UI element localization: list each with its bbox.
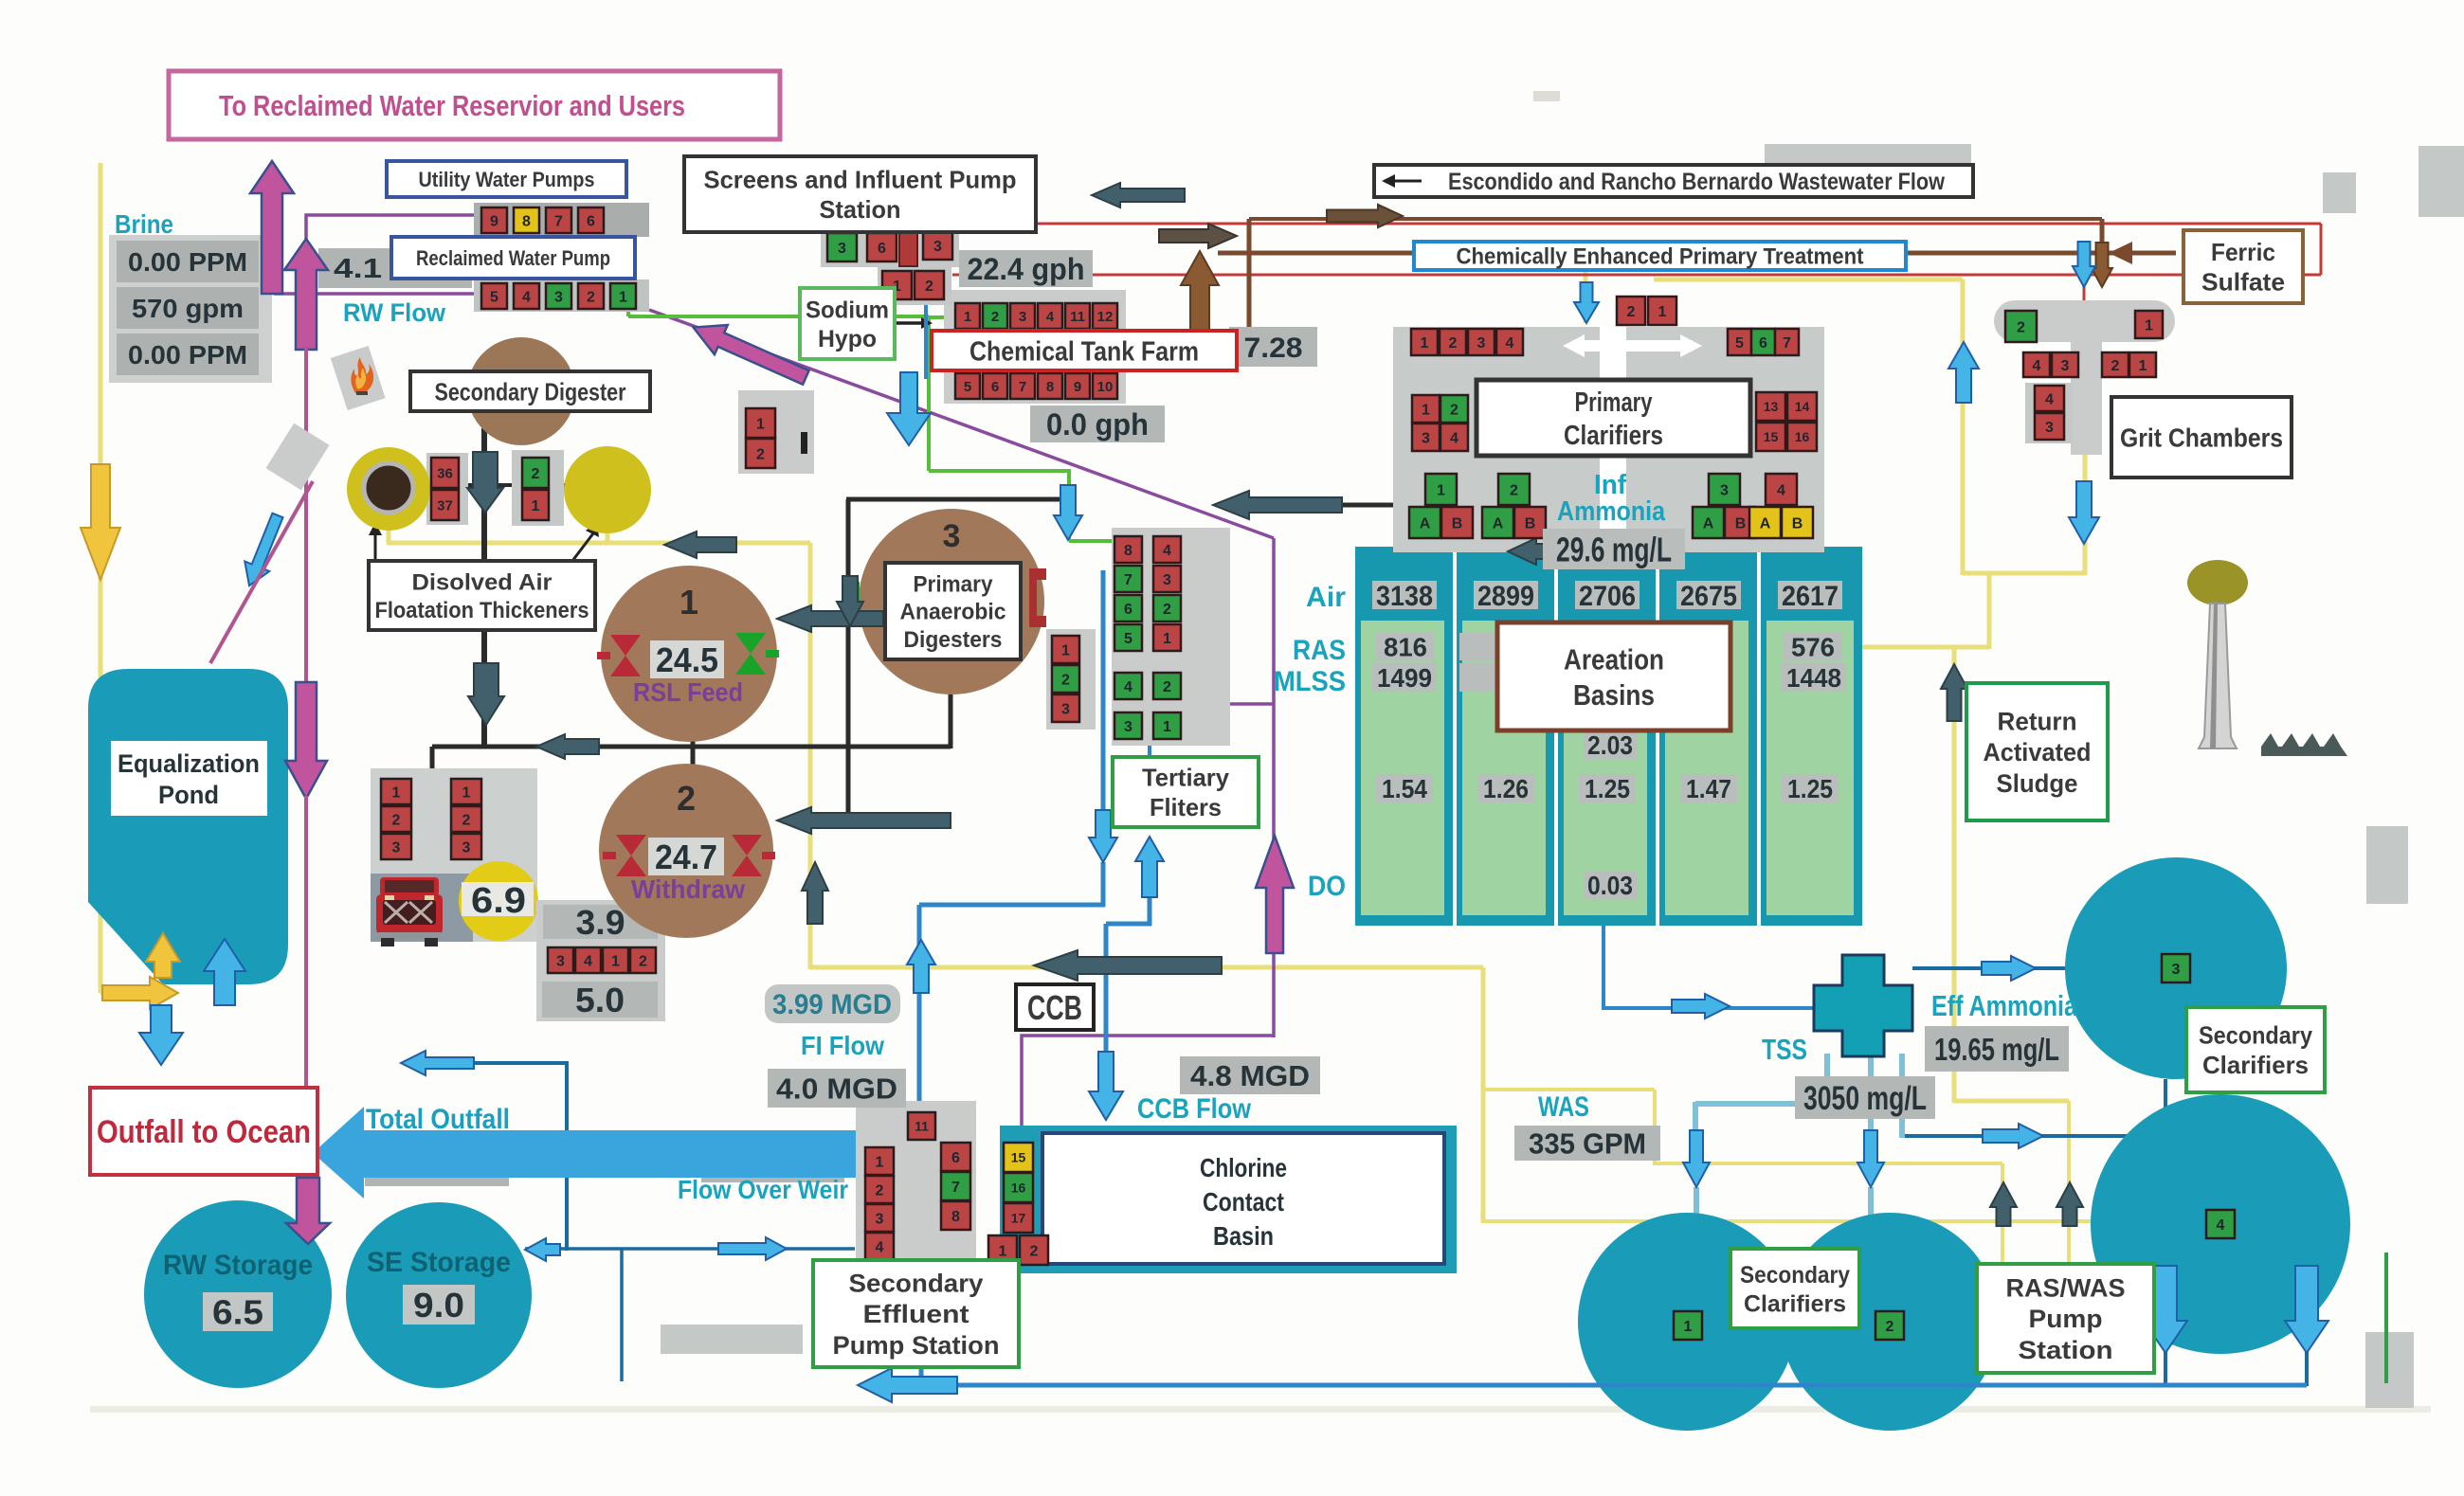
- svg-text:7.28: 7.28: [1244, 333, 1303, 364]
- svg-text:3: 3: [1422, 430, 1430, 446]
- svg-text:5: 5: [490, 289, 498, 305]
- svg-text:16: 16: [1795, 429, 1810, 444]
- svg-text:B: B: [1735, 515, 1747, 532]
- svg-text:4: 4: [1777, 482, 1785, 498]
- svg-text:1499: 1499: [1377, 663, 1432, 693]
- svg-text:2: 2: [639, 953, 647, 969]
- svg-text:10: 10: [1097, 379, 1114, 395]
- svg-text:Floatation Thickeners: Floatation Thickeners: [375, 598, 589, 623]
- svg-text:17: 17: [1011, 1211, 1026, 1226]
- svg-text:1.54: 1.54: [1382, 774, 1427, 803]
- svg-text:2: 2: [925, 279, 933, 295]
- svg-text:1: 1: [1658, 304, 1667, 320]
- svg-text:1: 1: [619, 289, 627, 305]
- svg-text:2617: 2617: [1782, 581, 1839, 612]
- svg-text:Ammonia: Ammonia: [1557, 496, 1666, 527]
- svg-text:2: 2: [1449, 335, 1458, 351]
- svg-text:1: 1: [611, 953, 620, 969]
- svg-text:2: 2: [1163, 679, 1171, 695]
- svg-text:CCB: CCB: [1027, 988, 1082, 1027]
- svg-text:Clarifiers: Clarifiers: [1564, 421, 1663, 451]
- svg-text:Activated: Activated: [1984, 738, 2092, 766]
- svg-text:1: 1: [756, 416, 765, 432]
- svg-text:CCB Flow: CCB Flow: [1137, 1093, 1252, 1125]
- svg-text:4: 4: [584, 953, 592, 969]
- svg-text:Sludge: Sludge: [1997, 769, 2078, 798]
- svg-text:0.03: 0.03: [1587, 871, 1633, 900]
- svg-text:2: 2: [677, 779, 696, 818]
- svg-text:MLSS: MLSS: [1274, 666, 1346, 697]
- svg-text:4: 4: [2045, 391, 2054, 407]
- svg-text:6: 6: [1124, 602, 1132, 618]
- svg-text:3138: 3138: [1376, 581, 1433, 612]
- svg-text:B: B: [1525, 515, 1536, 532]
- svg-text:4.0 MGD: 4.0 MGD: [776, 1072, 897, 1106]
- svg-text:5: 5: [964, 379, 971, 395]
- svg-text:4: 4: [522, 289, 531, 305]
- svg-text:1: 1: [462, 784, 471, 801]
- svg-text:4: 4: [876, 1239, 884, 1255]
- svg-text:6: 6: [587, 213, 595, 229]
- svg-text:A: A: [1493, 515, 1504, 532]
- svg-text:5: 5: [1124, 631, 1132, 647]
- svg-text:2: 2: [1510, 482, 1518, 498]
- svg-text:7: 7: [1124, 572, 1132, 588]
- svg-text:Chemically Enhanced Primary Tr: Chemically Enhanced Primary Treatment: [1457, 244, 1864, 270]
- svg-text:Ferric: Ferric: [2211, 238, 2275, 266]
- svg-text:Basin: Basin: [1213, 1221, 1274, 1251]
- svg-text:SE Storage: SE Storage: [367, 1247, 511, 1278]
- svg-text:1: 1: [1061, 642, 1070, 658]
- svg-text:7: 7: [554, 213, 563, 229]
- svg-text:Station: Station: [2019, 1336, 2113, 1364]
- svg-text:B: B: [1452, 515, 1463, 532]
- svg-text:5: 5: [1735, 335, 1744, 351]
- svg-text:2: 2: [1030, 1243, 1039, 1259]
- svg-text:0.0 gph: 0.0 gph: [1046, 407, 1149, 442]
- svg-text:2: 2: [991, 309, 999, 325]
- svg-text:2: 2: [1627, 304, 1636, 320]
- svg-text:6.5: 6.5: [212, 1292, 263, 1331]
- svg-text:2: 2: [2111, 358, 2120, 374]
- svg-text:22.4 gph: 22.4 gph: [968, 252, 1085, 286]
- svg-text:9: 9: [490, 213, 498, 229]
- svg-text:3: 3: [392, 839, 401, 856]
- svg-text:2: 2: [532, 466, 540, 482]
- svg-text:3: 3: [1720, 482, 1729, 498]
- svg-text:36: 36: [437, 465, 453, 481]
- svg-text:576: 576: [1791, 633, 1835, 662]
- svg-text:9: 9: [1074, 379, 1081, 395]
- svg-text:Escondido and Rancho Bernardo: Escondido and Rancho Bernardo Wastewater…: [1448, 169, 1945, 195]
- svg-text:3: 3: [554, 289, 563, 305]
- svg-text:3: 3: [1163, 572, 1171, 588]
- svg-text:1: 1: [1163, 719, 1171, 735]
- svg-text:8: 8: [1046, 379, 1054, 395]
- svg-text:1: 1: [1422, 402, 1430, 418]
- svg-text:4: 4: [1124, 679, 1132, 695]
- svg-text:13: 13: [1764, 399, 1779, 414]
- svg-text:Digesters: Digesters: [904, 627, 1003, 653]
- svg-text:5.0: 5.0: [575, 981, 625, 1019]
- svg-text:3: 3: [556, 953, 565, 969]
- svg-text:816: 816: [1384, 633, 1427, 662]
- svg-text:WAS: WAS: [1538, 1091, 1589, 1123]
- svg-text:Utility Water Pumps: Utility Water Pumps: [419, 168, 595, 191]
- svg-text:Outfall to Ocean: Outfall to Ocean: [97, 1114, 311, 1150]
- svg-text:3: 3: [1477, 335, 1486, 351]
- svg-text:3: 3: [1019, 309, 1026, 325]
- svg-text:1: 1: [532, 498, 540, 514]
- svg-text:2: 2: [1886, 1319, 1894, 1335]
- svg-text:Tertiary: Tertiary: [1142, 764, 1230, 792]
- svg-text:19.65 mg/L: 19.65 mg/L: [1934, 1032, 2059, 1067]
- svg-text:FI Flow: FI Flow: [801, 1031, 884, 1060]
- svg-text:Eff Ammonia: Eff Ammonia: [1931, 989, 2078, 1022]
- svg-text:RSL Feed: RSL Feed: [633, 677, 743, 707]
- svg-text:2: 2: [756, 446, 765, 462]
- svg-text:Reclaimed Water Pump: Reclaimed Water Pump: [416, 246, 610, 270]
- svg-text:Station: Station: [820, 195, 901, 224]
- svg-text:3: 3: [462, 839, 471, 856]
- svg-text:B: B: [1792, 515, 1803, 532]
- svg-text:3: 3: [1061, 701, 1070, 717]
- svg-text:7: 7: [1783, 335, 1791, 351]
- svg-text:1: 1: [1684, 1319, 1693, 1335]
- svg-text:2: 2: [876, 1182, 884, 1199]
- svg-text:4: 4: [1163, 543, 1171, 559]
- svg-text:3: 3: [876, 1211, 884, 1227]
- svg-text:24.7: 24.7: [655, 838, 717, 876]
- svg-text:A: A: [1420, 515, 1431, 532]
- svg-text:Pump: Pump: [2029, 1305, 2103, 1333]
- svg-text:Total Outfall: Total Outfall: [366, 1104, 510, 1135]
- svg-text:4: 4: [1450, 430, 1458, 446]
- svg-text:4.8 MGD: 4.8 MGD: [1190, 1059, 1310, 1092]
- svg-text:24.5: 24.5: [656, 640, 718, 679]
- svg-text:4: 4: [2033, 358, 2041, 374]
- svg-text:2: 2: [462, 812, 471, 828]
- svg-text:Flow Over Weir: Flow Over Weir: [678, 1175, 848, 1204]
- svg-text:1: 1: [1163, 631, 1171, 647]
- svg-text:1.26: 1.26: [1483, 774, 1529, 803]
- svg-text:16: 16: [1011, 1181, 1026, 1196]
- svg-text:9.0: 9.0: [413, 1286, 464, 1325]
- svg-text:2: 2: [587, 289, 595, 305]
- svg-text:Clarifiers: Clarifiers: [1744, 1290, 1846, 1317]
- svg-text:3.99 MGD: 3.99 MGD: [772, 989, 892, 1020]
- svg-text:2675: 2675: [1680, 581, 1737, 612]
- svg-text:335 GPM: 335 GPM: [1529, 1127, 1646, 1161]
- svg-text:570 gpm: 570 gpm: [132, 294, 244, 323]
- svg-text:0.00 PPM: 0.00 PPM: [128, 247, 247, 277]
- svg-text:3: 3: [1124, 719, 1132, 735]
- svg-text:To Reclaimed Water Reservior a: To Reclaimed Water Reservior and Users: [219, 89, 685, 122]
- svg-text:3050 mg/L: 3050 mg/L: [1803, 1080, 1927, 1117]
- svg-text:A: A: [1760, 515, 1771, 532]
- svg-text:Secondary: Secondary: [2199, 1021, 2312, 1050]
- svg-text:Secondary: Secondary: [849, 1269, 984, 1297]
- svg-text:Basins: Basins: [1573, 678, 1655, 712]
- svg-text:8: 8: [951, 1209, 960, 1225]
- svg-text:3: 3: [933, 239, 942, 255]
- svg-text:Sodium: Sodium: [806, 297, 889, 323]
- svg-text:11: 11: [1070, 309, 1085, 325]
- svg-text:Grit Chambers: Grit Chambers: [2120, 424, 2283, 453]
- svg-text:2: 2: [1163, 602, 1171, 618]
- svg-text:Hypo: Hypo: [818, 326, 877, 352]
- svg-text:1: 1: [876, 1154, 884, 1170]
- svg-text:Sulfate: Sulfate: [2201, 268, 2285, 297]
- svg-text:1: 1: [2145, 317, 2153, 333]
- svg-text:6: 6: [991, 379, 999, 395]
- svg-text:Pond: Pond: [158, 781, 219, 809]
- svg-text:1: 1: [1421, 335, 1429, 351]
- svg-text:Secondary: Secondary: [1740, 1262, 1850, 1289]
- svg-text:1: 1: [2139, 358, 2147, 374]
- svg-text:Return: Return: [1998, 707, 2077, 735]
- svg-text:RAS: RAS: [1293, 635, 1346, 666]
- svg-text:Brine: Brine: [115, 209, 173, 239]
- svg-text:2: 2: [1450, 402, 1458, 418]
- svg-text:RW Storage: RW Storage: [163, 1250, 313, 1281]
- svg-text:Contact: Contact: [1203, 1187, 1284, 1217]
- svg-text:6: 6: [951, 1150, 960, 1166]
- svg-text:Equalization: Equalization: [118, 749, 260, 778]
- svg-text:3: 3: [838, 241, 846, 257]
- svg-text:Chemical Tank Farm: Chemical Tank Farm: [969, 336, 1199, 367]
- svg-text:1: 1: [999, 1243, 1007, 1259]
- svg-text:1: 1: [679, 583, 698, 622]
- svg-text:TSS: TSS: [1762, 1033, 1807, 1066]
- svg-text:1.47: 1.47: [1686, 774, 1731, 803]
- svg-text:DO: DO: [1308, 871, 1346, 902]
- svg-text:15: 15: [1011, 1150, 1026, 1165]
- svg-text:Pump Station: Pump Station: [833, 1331, 1000, 1360]
- svg-text:2: 2: [2017, 319, 2025, 335]
- svg-text:1.25: 1.25: [1787, 774, 1833, 803]
- svg-text:12: 12: [1097, 309, 1114, 325]
- svg-text:Fliters: Fliters: [1150, 793, 1222, 821]
- svg-text:Areation: Areation: [1564, 642, 1664, 676]
- svg-text:Effluent: Effluent: [863, 1300, 969, 1328]
- svg-text:3.9: 3.9: [576, 903, 625, 942]
- svg-text:1: 1: [1437, 482, 1445, 498]
- svg-text:2706: 2706: [1579, 581, 1636, 612]
- svg-text:Disolved Air: Disolved Air: [412, 570, 553, 596]
- svg-text:4: 4: [2217, 1217, 2225, 1234]
- svg-text:1.25: 1.25: [1585, 774, 1630, 803]
- svg-text:Screens and Influent Pump: Screens and Influent Pump: [704, 166, 1017, 194]
- svg-text:7: 7: [1019, 379, 1026, 395]
- svg-text:11: 11: [915, 1119, 929, 1134]
- svg-text:0.00 PPM: 0.00 PPM: [128, 340, 247, 369]
- svg-text:15: 15: [1764, 429, 1779, 444]
- svg-text:2: 2: [1061, 672, 1070, 688]
- svg-text:Chlorine: Chlorine: [1200, 1153, 1287, 1182]
- svg-text:3: 3: [2045, 420, 2054, 436]
- svg-text:6: 6: [1759, 335, 1767, 351]
- svg-text:8: 8: [522, 213, 531, 229]
- svg-text:2899: 2899: [1477, 581, 1534, 612]
- svg-text:3: 3: [2061, 358, 2070, 374]
- svg-text:Secondary Digester: Secondary Digester: [435, 377, 626, 406]
- svg-text:29.6 mg/L: 29.6 mg/L: [1556, 530, 1672, 568]
- svg-text:4: 4: [1046, 309, 1055, 325]
- svg-text:Air: Air: [1306, 582, 1346, 613]
- svg-text:A: A: [1703, 515, 1714, 532]
- svg-text:14: 14: [1795, 399, 1810, 414]
- svg-text:RW Flow: RW Flow: [343, 298, 446, 327]
- svg-text:6.9: 6.9: [471, 881, 526, 921]
- svg-text:37: 37: [437, 497, 453, 514]
- svg-text:Primary: Primary: [1575, 388, 1653, 418]
- svg-text:Clarifiers: Clarifiers: [2202, 1051, 2309, 1079]
- svg-text:7: 7: [951, 1180, 960, 1196]
- svg-text:Withdraw: Withdraw: [631, 874, 745, 904]
- svg-text:6: 6: [878, 241, 886, 257]
- svg-text:1448: 1448: [1786, 663, 1841, 693]
- svg-text:1: 1: [392, 784, 401, 801]
- svg-text:3: 3: [943, 518, 961, 554]
- svg-text:Anaerobic: Anaerobic: [900, 600, 1006, 625]
- svg-text:3: 3: [2172, 962, 2181, 978]
- svg-text:8: 8: [1124, 543, 1132, 559]
- svg-text:Primary: Primary: [914, 571, 994, 597]
- svg-text:4: 4: [1506, 335, 1514, 351]
- svg-text:1: 1: [964, 309, 971, 325]
- svg-text:RAS/WAS: RAS/WAS: [2006, 1273, 2126, 1302]
- svg-text:2: 2: [392, 812, 401, 828]
- svg-text:2.03: 2.03: [1587, 730, 1633, 760]
